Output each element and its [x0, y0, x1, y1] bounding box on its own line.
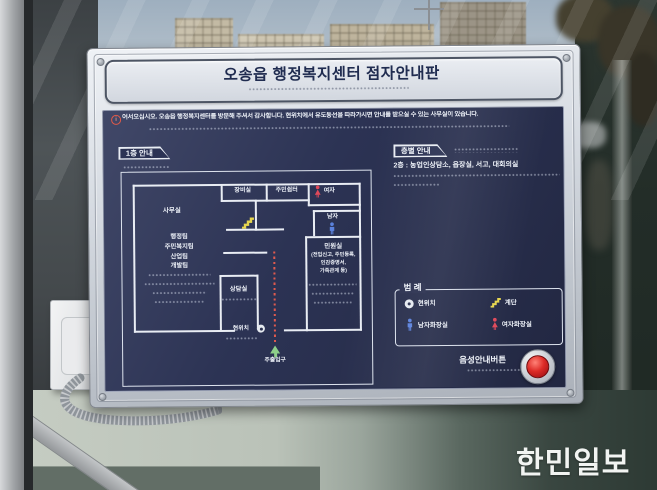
braille-row	[454, 147, 518, 153]
team-label: 산업팀	[171, 253, 188, 260]
wall	[255, 200, 257, 231]
room-civil: 민원실	[324, 243, 342, 251]
braille-row	[226, 337, 258, 341]
braille-row	[467, 368, 523, 372]
room-civil-detail: 가족관계 등)	[320, 269, 347, 275]
team-label: 주민복지팀	[165, 243, 194, 250]
braille-sign-panel: 오송읍 행정복지센터 점자안내판 i 어서오십시오. 오송읍 행정복지센터를 방…	[0, 0, 657, 490]
room-office: 사무실	[163, 207, 181, 215]
male-figure-icon	[406, 318, 414, 331]
legend-title: 범 례	[400, 283, 426, 293]
wall	[133, 185, 136, 333]
screw-icon	[97, 58, 105, 66]
room-women: 여자	[324, 188, 335, 195]
room-counsel: 상담실	[230, 286, 247, 293]
female-figure-icon	[314, 185, 322, 198]
legend-stairs: 계단	[505, 299, 517, 307]
guide-path-dotted	[273, 252, 276, 344]
tab-floor-guide-label: 층별 안내	[395, 146, 446, 156]
voice-button-label: 음성안내버튼	[459, 355, 506, 365]
red-push-button-icon[interactable]	[526, 355, 549, 378]
wall	[219, 275, 258, 277]
location-dot-icon	[405, 299, 414, 308]
braille-row	[155, 300, 205, 304]
wall	[219, 275, 221, 330]
braille-row	[153, 291, 207, 295]
wall	[308, 204, 361, 206]
legend-mens-restroom: 남자화장실	[418, 322, 448, 330]
legend-box	[395, 288, 563, 346]
current-location-label: 현위치	[233, 326, 249, 333]
room-men: 남자	[327, 214, 338, 221]
location-dot-icon	[257, 325, 265, 333]
wall	[134, 330, 235, 333]
braille-row	[123, 165, 169, 169]
tab-floor1-label: 1층 안내	[120, 148, 169, 158]
photo-scene: 오송읍 행정복지센터 점자안내판 i 어서오십시오. 오송읍 행정복지센터를 방…	[0, 0, 657, 490]
team-label: 개발팀	[171, 262, 188, 269]
press-watermark: 한민일보	[516, 438, 630, 482]
wall	[226, 228, 284, 231]
second-floor-info: 2층 : 농업인상담소, 읍장실, 서고, 대회의실	[393, 161, 518, 170]
wall	[305, 236, 308, 331]
voice-guide-button[interactable]	[520, 349, 555, 384]
braille-row	[145, 282, 215, 287]
room-civil-detail: 인감증명서,	[321, 261, 346, 267]
info-icon: i	[111, 115, 121, 125]
braille-row	[312, 292, 354, 296]
wall	[308, 183, 310, 206]
legend-womens-restroom: 여자화장실	[502, 321, 532, 329]
braille-row	[148, 273, 210, 278]
braille-row	[309, 283, 357, 287]
wall	[133, 183, 361, 187]
main-entrance-label: 주출입구	[264, 357, 285, 364]
screw-icon	[566, 389, 574, 397]
wall	[256, 275, 258, 330]
braille-row	[394, 183, 440, 187]
room-equipment: 장비실	[234, 188, 251, 195]
wall	[223, 252, 267, 254]
wall	[305, 236, 361, 238]
wall	[313, 210, 361, 212]
braille-row	[314, 301, 352, 305]
up-arrow-icon	[270, 345, 280, 353]
room-civil-detail: (전입신고, 주민등록,	[311, 253, 355, 259]
team-label: 행정팀	[170, 233, 187, 240]
screw-icon	[98, 393, 106, 401]
screw-icon	[563, 54, 571, 62]
male-figure-icon	[328, 222, 336, 235]
stairs-zigzag-icon	[490, 296, 502, 308]
braille-row	[222, 298, 258, 302]
room-rest-area: 주민쉼터	[276, 187, 298, 194]
wall	[284, 329, 362, 332]
wall	[313, 210, 315, 236]
stairs-zigzag-icon	[241, 215, 255, 229]
floor-map: 사무실 행정팀 주민복지팀 산업팀 개발팀 장비실 주민쉼터 여자 남자	[121, 170, 374, 387]
wall	[221, 199, 310, 202]
legend-current-location: 현위치	[418, 300, 436, 308]
female-figure-icon	[491, 318, 499, 331]
